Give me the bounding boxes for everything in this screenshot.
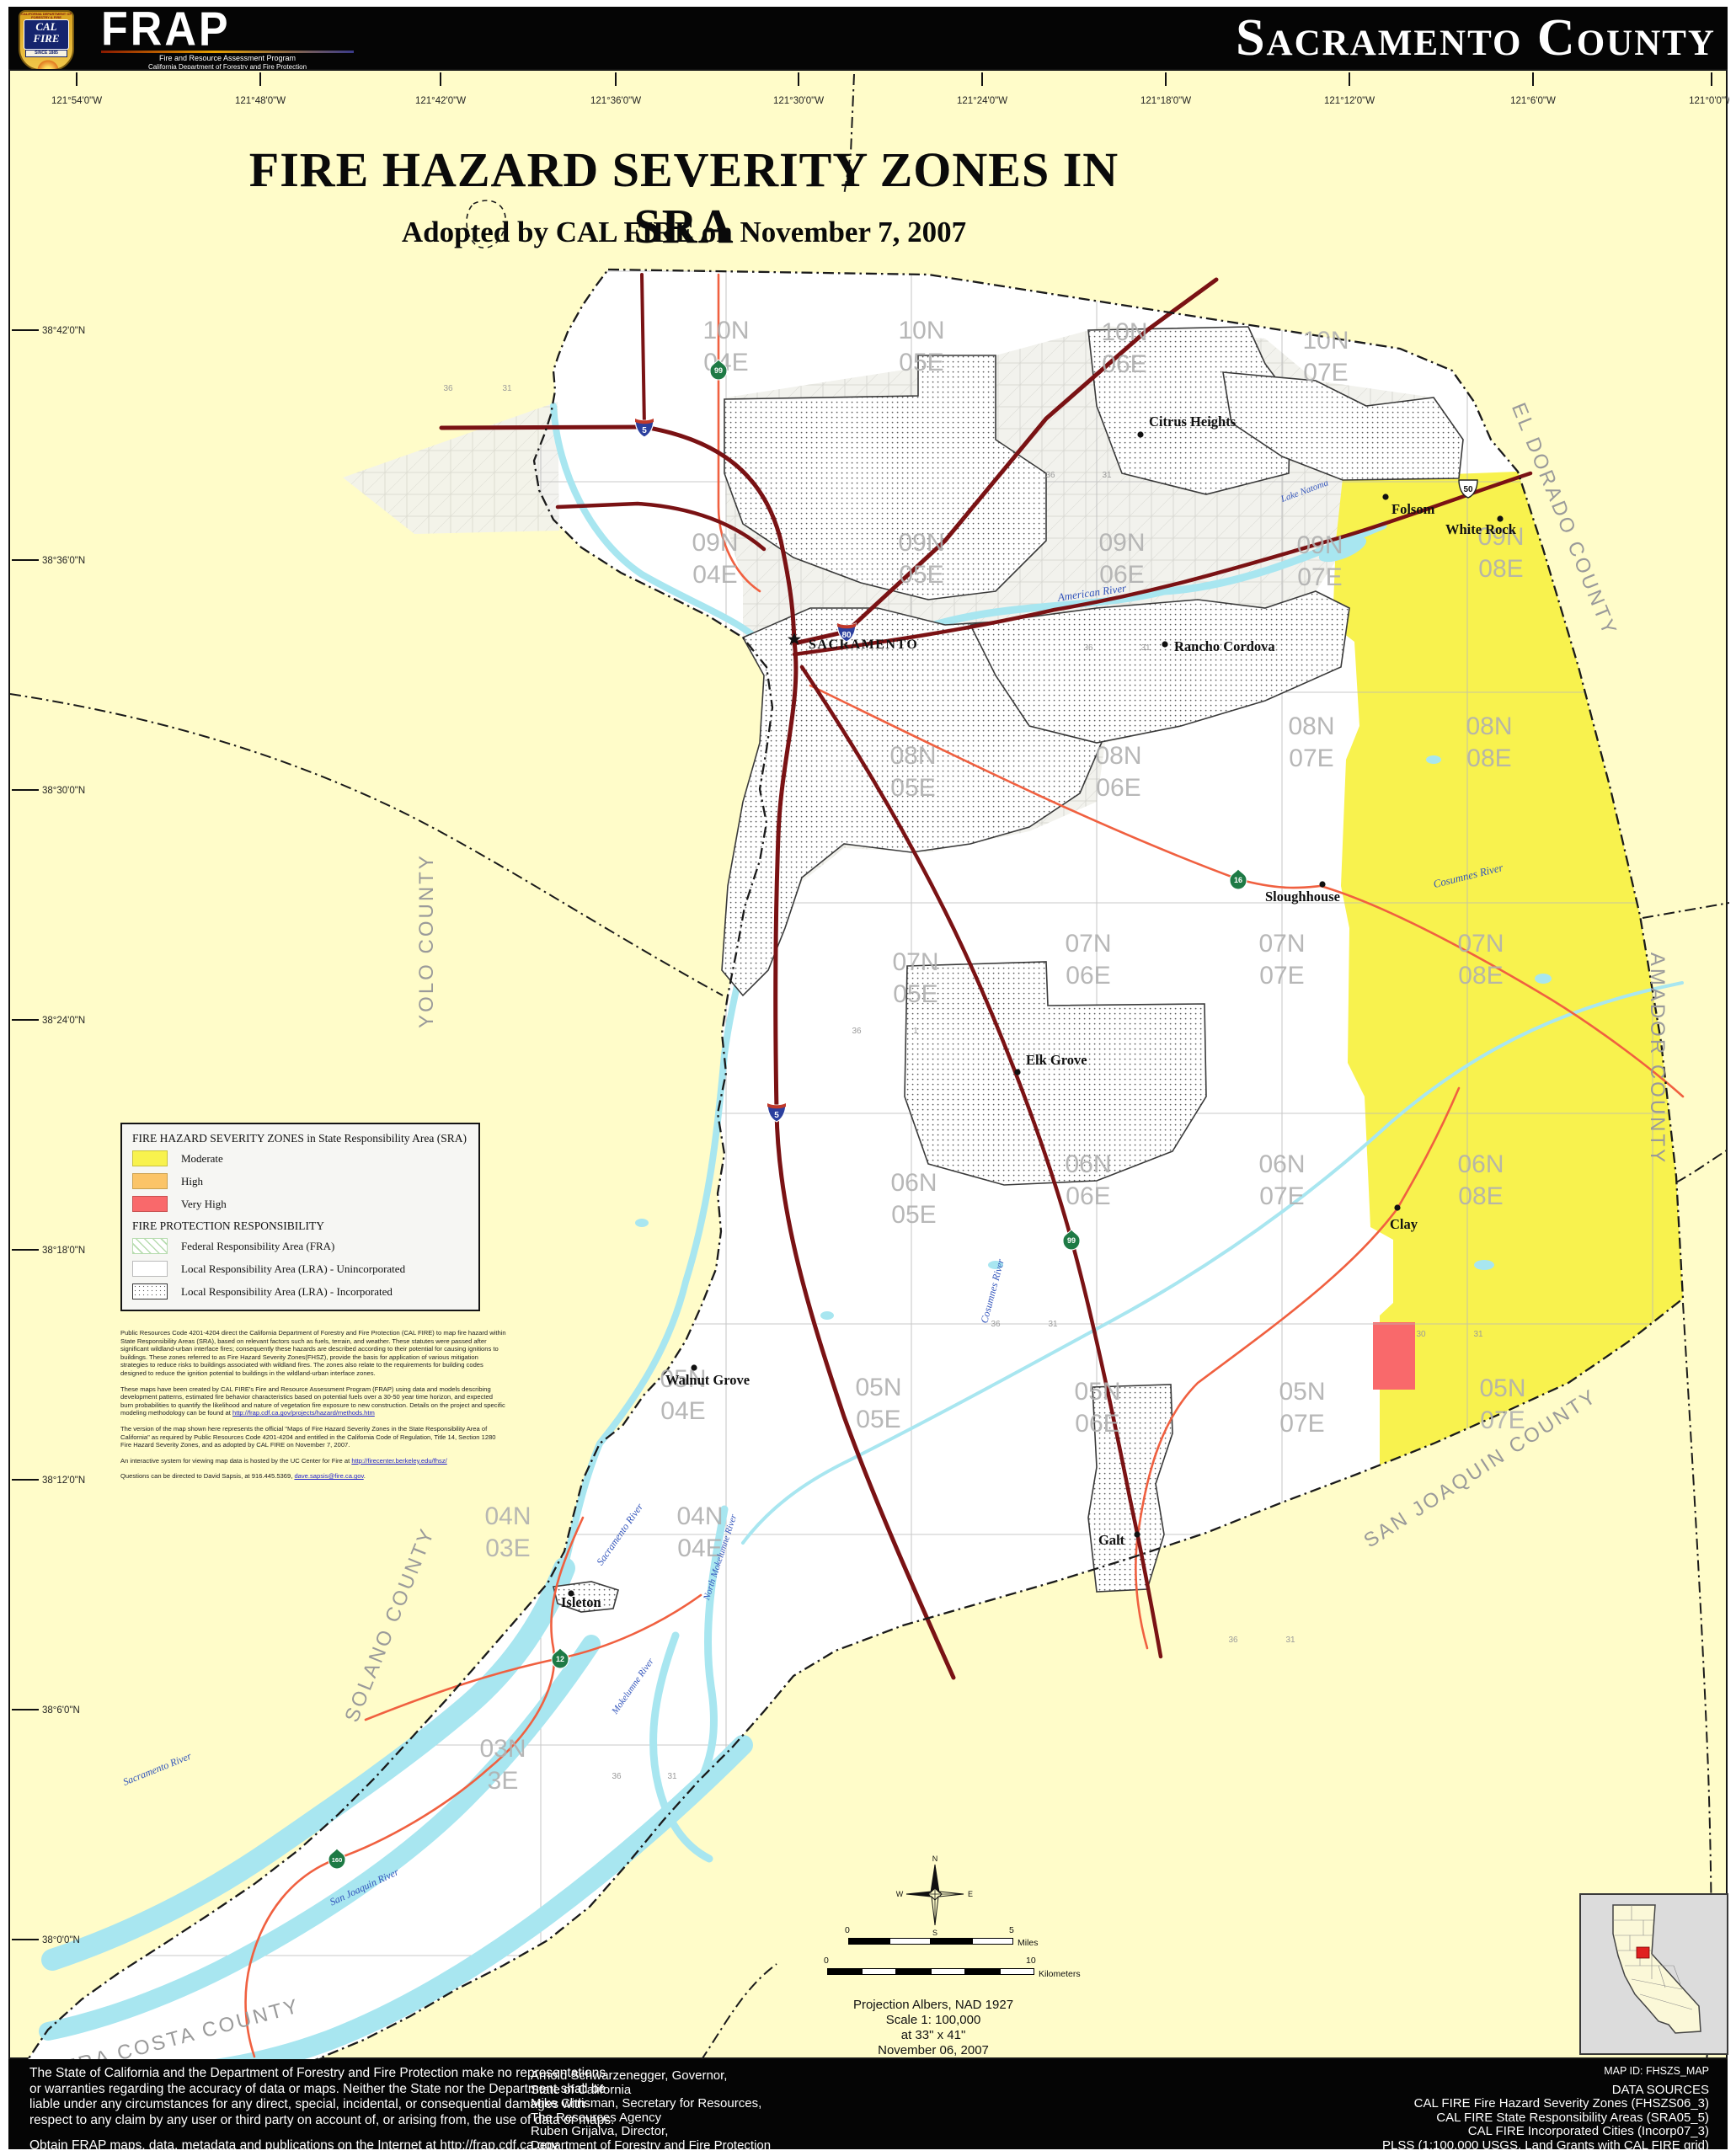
city-dot-marker (1319, 881, 1325, 887)
township-label: 05N (1074, 1378, 1120, 1406)
high-swatch (132, 1173, 168, 1189)
city-dot-marker (1394, 1204, 1400, 1210)
township-label: 10N (898, 317, 944, 344)
miles-start: 0 (845, 1925, 850, 1935)
city-label: White Rock (1445, 521, 1517, 537)
township-label: 10N (1101, 318, 1147, 346)
section-number: 31 (1285, 1636, 1295, 1645)
township-label: 06E (1066, 962, 1110, 990)
state-route-shield-number: 160 (332, 1856, 343, 1864)
city-dot-marker (1137, 431, 1143, 437)
city-dot-marker (1382, 494, 1388, 499)
miles-unit: Miles (1018, 1938, 1039, 1948)
official-line: Ruben Grijalva, Director, (531, 2125, 771, 2139)
city-label: SACRAMENTO (809, 638, 918, 652)
projection-line-1: Projection Albers, NAD 1927 (799, 1998, 1068, 2013)
compass-e: E (968, 1890, 973, 1898)
city-label: Citrus Heights (1149, 414, 1237, 430)
official-line: The Resources Agency (531, 2111, 771, 2126)
lon-label: 121°54'0"W (51, 96, 102, 106)
city-dot-marker (1014, 1069, 1020, 1075)
california-outline (1613, 1905, 1701, 2033)
lra-incorporated-swatch (132, 1283, 168, 1299)
township-label: 09N (1296, 531, 1343, 559)
township-label: 07N (1065, 930, 1111, 958)
lon-label: 121°42'0"W (415, 96, 466, 106)
map-notes: Public Resources Code 4201-4204 direct t… (120, 1329, 506, 1488)
interstate-shield-number: 5 (774, 1111, 779, 1120)
notes-paragraph-1: Public Resources Code 4201-4204 direct t… (120, 1329, 506, 1378)
notes-paragraph-2: These maps have been created by CAL FIRE… (120, 1385, 506, 1417)
section-number: 31 (1048, 1320, 1058, 1329)
interstate-shield-number: 5 (642, 426, 647, 435)
notes-paragraph-3: The version of the map shown here repres… (120, 1425, 506, 1449)
legend-title: FIRE HAZARD SEVERITY ZONES in State Resp… (132, 1132, 478, 1145)
township-label: 07E (1289, 744, 1333, 772)
west-sac-urban (343, 402, 559, 534)
firecenter-link[interactable]: http://firecenter.berkeley.edu/fhsz/ (351, 1457, 446, 1465)
township-label: 05N (1279, 1378, 1325, 1406)
township-label: 07E (1279, 1410, 1324, 1438)
city-dot-marker (1162, 641, 1167, 647)
moderate-swatch (132, 1150, 168, 1166)
township-label: 08E (1458, 962, 1503, 990)
frap-logo: FRAP Fire and Resource Assessment Progra… (101, 8, 387, 67)
moderate-zone (1333, 472, 1683, 1465)
compass-w: W (896, 1890, 904, 1898)
official-line: Arnold Schwarzenegger, Governor, (531, 2069, 771, 2084)
badge-fire: FIRE (24, 33, 68, 44)
notes-paragraph-4-text: An interactive system for viewing map da… (120, 1457, 351, 1465)
map-svg: N S W E 10N04E10N05E10N06E10N07E09N04E09… (10, 71, 1729, 2061)
township-label: 05E (891, 1201, 936, 1229)
scalebar-segment (931, 1938, 972, 1945)
scalebar-segment (972, 1938, 1013, 1945)
scalebar-segment (965, 1968, 1000, 1975)
us-shield-number: 50 (1463, 485, 1473, 494)
sheet-county-title: Sacramento County (1236, 10, 1716, 66)
map-canvas: N S W E 10N04E10N05E10N06E10N07E09N04E09… (8, 69, 1728, 2059)
projection-line-3: at 33" x 41" (799, 2028, 1068, 2043)
township-label: 06N (890, 1169, 937, 1197)
township-label: 05N (855, 1374, 901, 1401)
lat-label: 38°6'0"N (42, 1705, 80, 1716)
lon-label: 121°6'0"W (1510, 96, 1556, 106)
lon-label: 121°24'0"W (957, 96, 1007, 106)
fra-swatch (132, 1238, 168, 1254)
township-label: 07N (1457, 930, 1504, 958)
township-label: 10N (1302, 327, 1349, 355)
section-number: 36 (1228, 1636, 1238, 1645)
section-number: 36 (991, 1320, 1001, 1329)
city-label: Sloughhouse (1265, 889, 1340, 905)
header-bar: CALIFORNIA DEPARTMENT OF FORESTRY & FIRE… (8, 7, 1728, 69)
city-label: Clay (1390, 1216, 1418, 1232)
township-label: 09N (692, 529, 738, 557)
township-label: 05E (856, 1406, 900, 1433)
township-label: 07E (1303, 359, 1348, 387)
inset-svg (1581, 1895, 1727, 2053)
township-label: 06N (1258, 1150, 1305, 1178)
township-label: 09N (898, 529, 944, 557)
notes-paragraph-5-end: . (364, 1472, 366, 1480)
township-label: 08N (889, 742, 936, 770)
township-label: 05E (899, 561, 943, 589)
township-label: 08N (1288, 712, 1334, 740)
fra-label: Federal Responsibility Area (FRA) (181, 1240, 334, 1253)
township-label: 08E (1458, 1182, 1503, 1210)
projection-line-4: November 06, 2007 (799, 2043, 1068, 2058)
river-label: Sacramento River (121, 1750, 194, 1788)
lon-label: 121°12'0"W (1324, 96, 1375, 106)
township-label: 3E (488, 1767, 519, 1795)
scalebar-segment (827, 1968, 862, 1975)
frap-wordmark: FRAP (101, 7, 387, 52)
city-dot-marker (691, 1364, 697, 1370)
township-label: 04E (660, 1397, 705, 1425)
township-label: 04N (484, 1502, 531, 1530)
township-label: 04N (676, 1502, 723, 1530)
lra-unincorporated-swatch (132, 1261, 168, 1277)
map-sheet: CALIFORNIA DEPARTMENT OF FORESTRY & FIRE… (0, 0, 1736, 2156)
scalebar-segment (896, 1968, 931, 1975)
legend: FIRE HAZARD SEVERITY ZONES in State Resp… (120, 1123, 480, 1311)
lat-label: 38°24'0"N (42, 1016, 85, 1026)
lra-unincorporated-label: Local Responsibility Area (LRA) - Uninco… (181, 1262, 405, 1276)
data-source-line: PLSS (1:100,000 USGS, Land Grants with C… (1382, 2139, 1709, 2153)
data-source-line: CAL FIRE State Responsibility Areas (SRA… (1382, 2111, 1709, 2126)
township-label: 07E (1297, 563, 1342, 591)
projection-note: Projection Albers, NAD 1927 Scale 1: 100… (799, 1998, 1068, 2058)
section-number: 31 (667, 1772, 677, 1781)
township-label: 06E (1075, 1410, 1119, 1438)
township-label: 07N (1258, 930, 1305, 958)
township-label: 06N (1457, 1150, 1504, 1178)
township-label: 05E (899, 349, 943, 376)
township-label: 06E (1096, 774, 1140, 802)
county-label: YOLO COUNTY (415, 853, 438, 1028)
data-source-line: CAL FIRE Fire Hazard Severity Zones (FHS… (1382, 2097, 1709, 2111)
township-label: 08E (1478, 555, 1523, 583)
map-id: MAP ID: FHSZS_MAP (1382, 2064, 1709, 2079)
interstate-shield-number: 80 (841, 631, 852, 640)
scalebar-segment (889, 1938, 931, 1945)
data-source-line: CAL FIRE Incorporated Cities (Incorp07_3… (1382, 2125, 1709, 2139)
state-route-shield-number: 99 (1067, 1236, 1076, 1245)
city-label: Rancho Cordova (1174, 638, 1275, 654)
section-number: 31 (1473, 1330, 1483, 1339)
lat-label: 38°0'0"N (42, 1935, 80, 1945)
scalebar-segment (931, 1968, 965, 1975)
footer-bar: The State of California and the Departme… (8, 2059, 1728, 2149)
lon-label: 121°0'0"W (1689, 96, 1729, 106)
township-label: 08N (1095, 742, 1141, 770)
very-high-zone (1373, 1322, 1415, 1390)
state-route-shield-number: 99 (714, 366, 723, 375)
lon-label: 121°30'0"W (773, 96, 824, 106)
city-dot-marker (1134, 1531, 1140, 1537)
notes-paragraph-5-text: Questions can be directed to David Sapsi… (120, 1472, 294, 1480)
badge-cal: CAL (24, 20, 68, 33)
notes-paragraph-5: Questions can be directed to David Sapsi… (120, 1472, 506, 1481)
lat-label: 38°30'0"N (42, 786, 85, 796)
badge-since: SINCE 1885 (25, 50, 67, 57)
city-label: Elk Grove (1026, 1052, 1087, 1068)
km-unit: Kilometers (1039, 1969, 1081, 1979)
county-label: AMADOR COUNTY (1646, 953, 1669, 1165)
scalebar-segment (1000, 1968, 1034, 1975)
lon-label: 121°36'0"W (590, 96, 641, 106)
city-label: Walnut Grove (665, 1372, 750, 1388)
section-number: 36 (443, 384, 453, 393)
lat-label: 38°42'0"N (42, 326, 85, 336)
section-number: 36 (612, 1772, 622, 1781)
california-inset-map (1579, 1893, 1728, 2055)
map-subtitle: Adopted by CAL FIRE on November 7, 2007 (212, 216, 1156, 249)
section-number: 31 (1102, 471, 1112, 480)
section-number: 31 (502, 384, 512, 393)
city-label: Folsom (1391, 501, 1435, 517)
county-label: SOLANO COUNTY (340, 1524, 440, 1726)
township-label: 08E (1466, 744, 1511, 772)
section-number: 36 (1045, 471, 1055, 480)
lon-label: 121°48'0"W (235, 96, 286, 106)
township-label: 04E (692, 561, 737, 589)
official-line: Department of Forestry and Fire Protecti… (531, 2139, 771, 2153)
km-start: 0 (824, 1956, 829, 1966)
moderate-label: Moderate (181, 1152, 223, 1166)
lat-label: 38°18'0"N (42, 1246, 85, 1256)
city-label: Galt (1098, 1532, 1125, 1548)
scalebar-segment (848, 1938, 889, 1945)
section-number: 1 (913, 1027, 918, 1036)
methods-link[interactable]: http://frap.cdf.ca.gov/projects/hazard/m… (232, 1409, 375, 1417)
notes-paragraph-4: An interactive system for viewing map da… (120, 1457, 506, 1465)
very-high-swatch (132, 1196, 168, 1212)
lra-incorporated-label: Local Responsibility Area (LRA) - Incorp… (181, 1285, 393, 1299)
state-route-shield-number: 16 (1234, 876, 1242, 884)
north-arrow: N S W E (896, 1854, 973, 1937)
official-line: Mike Chrisman, Secretary for Resources, (531, 2097, 771, 2111)
township-label: 05E (893, 980, 937, 1008)
lat-label: 38°12'0"N (42, 1476, 85, 1486)
official-line: State of California (531, 2084, 771, 2098)
data-sources-title: DATA SOURCES (1382, 2084, 1709, 2098)
township-label: 10N (702, 317, 749, 344)
township-label: 06E (1066, 1182, 1110, 1210)
township-label: 07E (1259, 962, 1304, 990)
township-label: 06N (1065, 1150, 1111, 1178)
township-label: 03N (479, 1735, 526, 1763)
section-number: 30 (1416, 1330, 1426, 1339)
state-route-shield-number: 12 (556, 1655, 564, 1663)
township-label: 09N (1098, 529, 1145, 557)
section-number: 36 (1083, 643, 1093, 653)
high-label: High (181, 1175, 203, 1188)
projection-line-2: Scale 1: 100,000 (799, 2013, 1068, 2028)
miles-end: 5 (1009, 1925, 1014, 1935)
scalebar-segment (862, 1968, 896, 1975)
lat-label: 38°36'0"N (42, 556, 85, 566)
footer-data-sources: MAP ID: FHSZS_MAP DATA SOURCES CAL FIRE … (1382, 2064, 1709, 2153)
legend-section-2: FIRE PROTECTION RESPONSIBILITY (132, 1219, 478, 1233)
township-label: 03E (485, 1534, 530, 1562)
compass-s: S (932, 1929, 937, 1937)
section-number: 31 (1140, 643, 1151, 653)
township-label: 06E (1102, 350, 1146, 378)
lon-label: 121°18'0"W (1140, 96, 1191, 106)
section-number: 36 (852, 1027, 862, 1036)
cal-fire-logo: CALIFORNIA DEPARTMENT OF FORESTRY & FIRE… (19, 10, 74, 71)
email-link[interactable]: dave.sapsis@fire.ca.gov (294, 1472, 363, 1480)
footer-officials: Arnold Schwarzenegger, Governor, State o… (531, 2069, 771, 2153)
km-end: 10 (1026, 1956, 1036, 1966)
township-label: 05N (1479, 1374, 1525, 1402)
township-label: 05E (890, 774, 935, 802)
city-label: Isleton (561, 1594, 601, 1610)
township-label: 08N (1466, 712, 1512, 740)
township-label: 07E (1259, 1182, 1304, 1210)
inset-sacramento-highlight (1637, 1947, 1649, 1958)
very-high-label: Very High (181, 1198, 227, 1211)
compass-n: N (932, 1854, 938, 1863)
township-label: 07N (892, 948, 938, 976)
